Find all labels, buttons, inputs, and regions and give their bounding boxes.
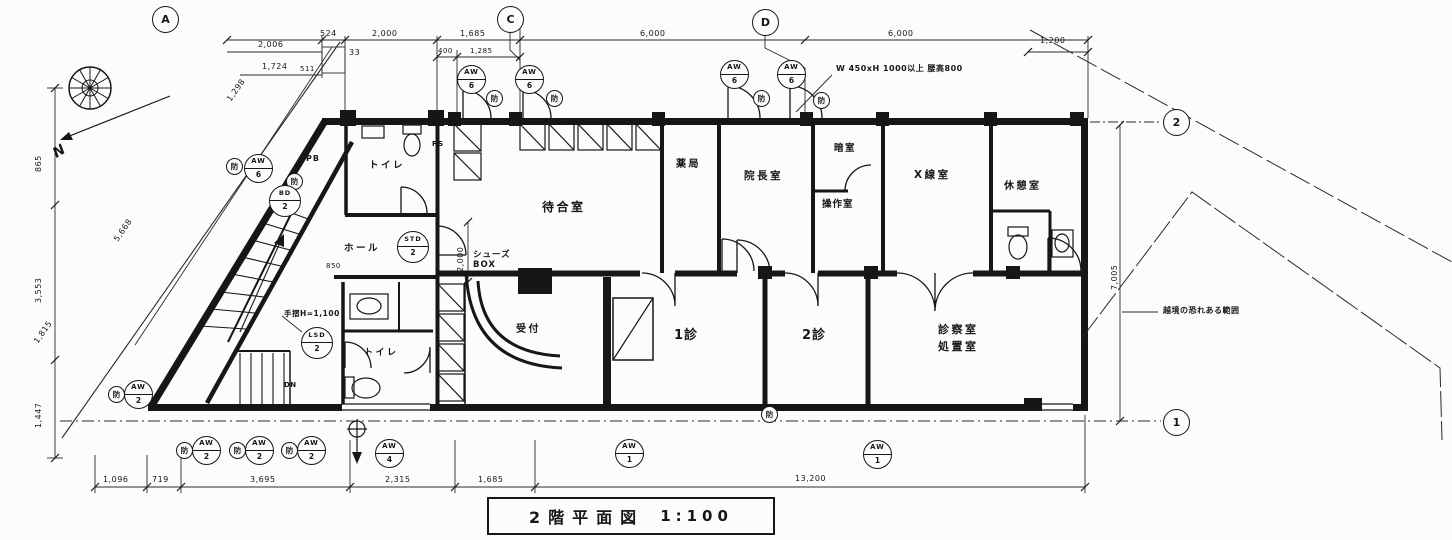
dim-1096: 1,096 (103, 475, 128, 484)
dim-865: 865 (34, 155, 43, 172)
window-mark-aw-top4: AW6 (777, 60, 806, 89)
dim-13200: 13,200 (795, 474, 826, 483)
dim-33: 33 (349, 48, 360, 57)
window-mark-aw-top3: AW6 (720, 60, 749, 89)
dim-719: 719 (152, 475, 169, 484)
drawing-scale: 1:100 (660, 507, 733, 525)
floor-plan-canvas: A C D 2 1 N トイレ PB PS ホール 待合室 シューズ BOX 受… (0, 0, 1452, 540)
wall-piers (340, 110, 1084, 411)
dim-6000-b: 6,000 (888, 29, 913, 38)
door-mark-std: STD2 (397, 231, 429, 263)
fire-mark-icon: 防 (229, 442, 246, 459)
room-toilet-upper: トイレ (369, 157, 405, 171)
neighbor-roof-lines (1030, 30, 1452, 440)
fire-mark-icon: 防 (813, 92, 830, 109)
room-pb: PB (306, 154, 320, 163)
dim-3695: 3,695 (250, 475, 275, 484)
fire-mark-icon: 防 (226, 158, 243, 175)
window-mark-aw-left: AW6 (244, 154, 273, 183)
room-treat-line1: 診察室 (938, 321, 979, 337)
room-exam1: 1診 (674, 324, 698, 343)
dim-1200: 1,200 (1040, 36, 1065, 45)
dim-2315: 2,315 (385, 475, 410, 484)
dim-2006: 2,006 (258, 40, 283, 49)
dim-1685-top: 1,685 (460, 29, 485, 38)
note-window-spec: W 450xH 1000以上 腰高800 (836, 63, 963, 74)
door-mark-lsd: LSD2 (301, 327, 333, 359)
fire-mark-icon: 防 (761, 406, 778, 423)
dimension-lines (47, 28, 1161, 493)
grid-bubble-c: C (497, 6, 524, 33)
room-waiting: 待合室 (542, 198, 586, 215)
dim-6000-a: 6,000 (640, 29, 665, 38)
fire-mark-icon: 防 (753, 90, 770, 107)
window-mark-aw-sw: AW2 (124, 380, 153, 409)
dim-3553: 3,553 (34, 278, 43, 303)
door-mark-bd: BD2 (269, 185, 301, 217)
room-shoes-line2: BOX (473, 260, 496, 270)
window-mark-aw-bottom3: AW2 (297, 436, 326, 465)
dim-7005: 7,005 (1110, 265, 1119, 290)
fire-mark-icon: 防 (546, 90, 563, 107)
room-toilet-lower: トイレ (364, 345, 399, 358)
room-darkroom: 暗室 (834, 140, 856, 154)
fire-mark-icon: 防 (486, 90, 503, 107)
room-shoes-line1: シューズ (473, 248, 511, 260)
fire-mark-icon: 防 (176, 442, 193, 459)
grid-bubble-d: D (752, 9, 779, 36)
window-mark-aw-bottom2: AW2 (245, 436, 274, 465)
note-boundary-risk: 越境の恐れある範囲 (1163, 305, 1240, 316)
drawing-title: 2階平面図 (529, 504, 644, 528)
dim-1724: 1,724 (262, 62, 287, 71)
entrance-arrowhead (352, 452, 362, 464)
note-down: DN (284, 381, 297, 389)
dim-850: 850 (326, 262, 341, 270)
dim-1685-bottom: 1,685 (478, 475, 503, 484)
window-mark-aw-top1: AW6 (457, 65, 486, 94)
room-rest: 休憩室 (1004, 177, 1042, 192)
window-mark-aw-bottom1: AW2 (192, 436, 221, 465)
dimension-ticks (51, 36, 1124, 491)
dim-400: 400 (438, 47, 453, 55)
room-exam2: 2診 (802, 324, 826, 343)
fire-mark-icon: 防 (108, 386, 125, 403)
fixtures (345, 124, 1073, 401)
room-ps: PS (432, 140, 444, 148)
north-compass (62, 67, 170, 139)
window-mark-aw-long1: AW1 (615, 439, 644, 468)
dim-2000-vert: 2,000 (456, 247, 465, 272)
window-mark-aw-top2: AW6 (515, 65, 544, 94)
grid-bubble-a: A (152, 6, 179, 33)
dim-1285: 1,285 (470, 47, 493, 55)
grid-bubble-1: 1 (1163, 409, 1190, 436)
room-pharmacy: 薬局 (676, 155, 701, 170)
window-mark-aw-long2: AW1 (863, 440, 892, 469)
room-director: 院長室 (744, 168, 783, 183)
fire-mark-icon: 防 (281, 442, 298, 459)
dim-1447: 1,447 (34, 403, 43, 428)
dim-524: 524 (320, 29, 337, 38)
room-control: 操作室 (822, 196, 854, 210)
note-handrail: 手摺H=1,100 (284, 308, 340, 319)
room-treat-line2: 処置室 (938, 338, 979, 354)
walls (148, 118, 1088, 411)
room-xray: X線室 (914, 167, 951, 182)
dim-2000-top: 2,000 (372, 29, 397, 38)
grid-bubble-2: 2 (1163, 109, 1190, 136)
room-reception: 受付 (516, 320, 541, 335)
drawing-title-box: 2階平面図 1:100 (487, 497, 775, 535)
dim-511: 511 (300, 65, 315, 73)
window-mark-aw-entry: AW4 (375, 439, 404, 468)
room-hall: ホール (344, 240, 380, 254)
